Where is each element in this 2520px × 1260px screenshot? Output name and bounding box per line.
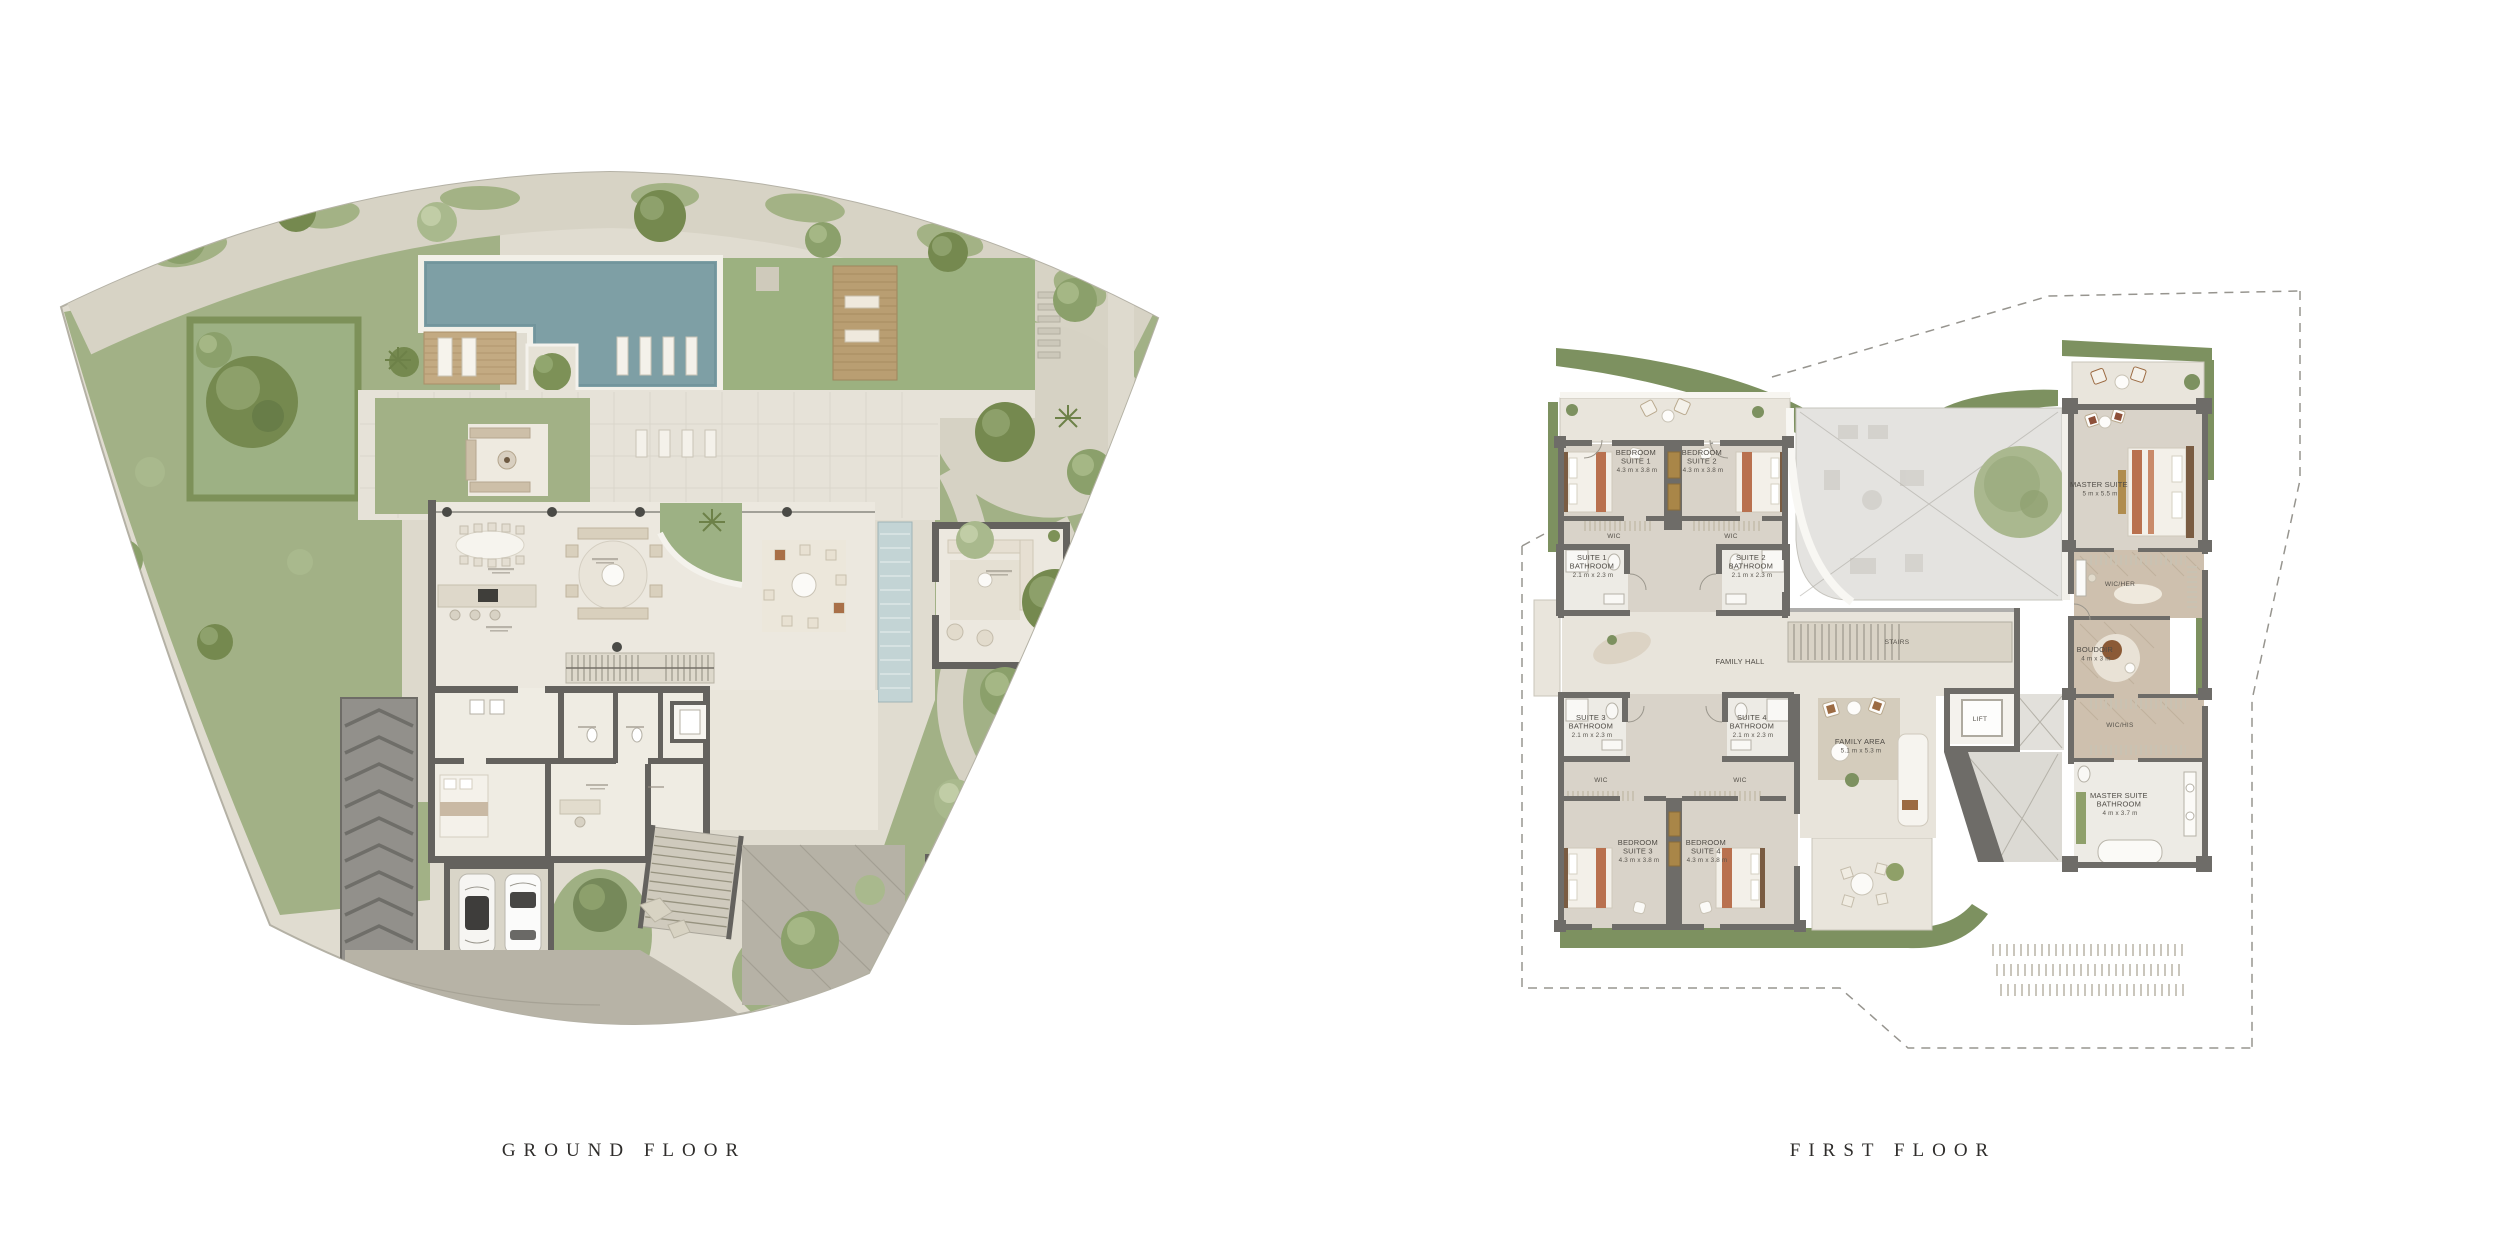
ground-floor-caption: GROUND FLOOR (314, 1140, 934, 1162)
label-stairs: STAIRS (1885, 639, 1910, 646)
label-wic-his: WIC/HIS (2106, 722, 2134, 729)
car-dark-roof (459, 874, 495, 954)
family-room (932, 522, 1070, 669)
suite3-bed (1563, 848, 1612, 908)
guest-bed (972, 950, 1048, 1020)
divider-closets-lower (1666, 798, 1682, 924)
entry-hall (710, 690, 878, 830)
label-wic-her: WIC/HER (2105, 581, 2135, 588)
suite2-bed (1736, 452, 1785, 512)
label-boudoir: BOUDOIR 4 m x 3 m (2077, 645, 2116, 663)
label-bedroom-suite-3: BEDROOM SUITE 3 4.3 m x 3.8 m (1618, 838, 1660, 864)
label-lift: LIFT (1973, 716, 1988, 723)
brochure-page: BEDROOM SUITE 1 4.3 m x 3.8 m BEDROOM SU… (0, 0, 2520, 1260)
suite4-chair (1699, 901, 1713, 915)
label-family-hall: FAMILY HALL (1715, 657, 1764, 666)
label-wic-4: WIC (1733, 777, 1747, 784)
tree-canopy (1974, 446, 2066, 538)
entry-steps (638, 825, 744, 940)
lift-shaft (672, 703, 708, 741)
label-bedroom-suite-2: BEDROOM SUITE 2 4.3 m x 3.8 m (1682, 448, 1724, 474)
label-bedroom-suite-4: BEDROOM SUITE 4 4.3 m x 3.8 m (1686, 838, 1728, 864)
pool-deck (424, 332, 516, 384)
ground-floor-plan (0, 0, 1260, 1260)
courtyard-skylight (1790, 400, 2070, 602)
suite1-bed (1563, 452, 1612, 512)
pergola-deck (833, 266, 897, 380)
interior-stairs (566, 653, 714, 683)
first-floor-caption: FIRST FLOOR (1583, 1140, 2203, 1162)
label-wic-2: WIC (1724, 533, 1738, 540)
divider-closets-upper (1664, 446, 1682, 530)
path-vertical-right (1108, 250, 1134, 450)
majlis-seating (762, 540, 846, 632)
garage (444, 863, 554, 963)
louvre-roof-ticks (1992, 950, 2185, 990)
terrace-sofa-set (466, 424, 548, 496)
water-feature (878, 522, 912, 702)
curved-sofa (975, 822, 1012, 832)
terrace-edge-white (1560, 392, 1790, 398)
guest-suite (925, 854, 1075, 1034)
suite3-chair (1633, 901, 1646, 914)
label-family-area: FAMILY AREA 5.1 m x 5.3 m (1835, 737, 1887, 755)
first-floor-plan: BEDROOM SUITE 1 4.3 m x 3.8 m BEDROOM SU… (1260, 0, 2520, 1260)
staff-bed (440, 775, 488, 837)
label-wic-3: WIC (1594, 777, 1608, 784)
master-bed (2118, 446, 2194, 538)
car-white (505, 874, 541, 954)
stone-pad (756, 267, 779, 291)
label-bedroom-suite-1: BEDROOM SUITE 1 4.3 m x 3.8 m (1616, 448, 1658, 474)
label-wic-1: WIC (1607, 533, 1621, 540)
